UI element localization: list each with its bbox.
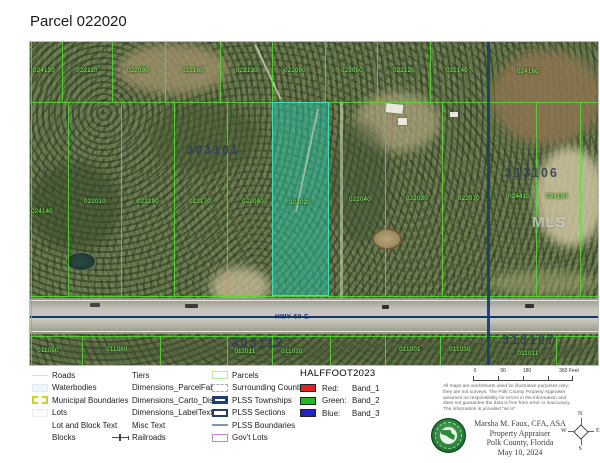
legend-item-label: Dimensions_LabelText bbox=[132, 408, 213, 417]
parcel-map-page: Parcel 022020 bbox=[0, 0, 600, 463]
raster-band-row: Red:Band_1 bbox=[300, 382, 380, 395]
legend-item-label: Misc Text bbox=[132, 421, 165, 430]
parcel-label: 011060 bbox=[106, 347, 127, 353]
band-name-label: Band_2 bbox=[352, 396, 380, 405]
parcel-line bbox=[220, 42, 221, 102]
legend-item-label: PLSS Townships bbox=[232, 396, 292, 405]
parcel-line bbox=[227, 102, 228, 296]
sections-icon bbox=[212, 409, 228, 417]
parcel-line bbox=[580, 102, 581, 296]
scale-tick-labels: 090180360 Feet bbox=[473, 368, 573, 375]
compass-e: E bbox=[596, 428, 600, 434]
scale-tick-mark bbox=[498, 376, 499, 380]
parcel-label: 024410 bbox=[508, 194, 530, 200]
parcel-label: 011050 bbox=[37, 348, 58, 354]
section-label: 313106 bbox=[505, 166, 559, 180]
terrain-patch bbox=[330, 122, 390, 242]
dirt-trail bbox=[340, 102, 343, 298]
page-title: Parcel 022020 bbox=[30, 13, 127, 30]
parcel-line bbox=[68, 102, 69, 296]
parcel-label: 022010 bbox=[84, 199, 106, 205]
raster-band-row: Green:Band_2 bbox=[300, 395, 380, 408]
section-label: 313107 bbox=[502, 333, 556, 347]
vehicle bbox=[382, 305, 389, 309]
parcel-label: 022080 bbox=[242, 199, 264, 205]
legend-item-label: Dimensions_ParcelFabric bbox=[132, 383, 223, 392]
railroad-icon bbox=[112, 437, 128, 438]
parcel-label: 022170 bbox=[189, 199, 211, 205]
band-channel-label: Green: bbox=[322, 396, 352, 405]
band-color-swatch bbox=[300, 384, 316, 392]
parcel-line bbox=[160, 336, 161, 365]
parcel-line bbox=[556, 336, 557, 365]
parcel-line bbox=[30, 296, 598, 297]
parcel-line bbox=[174, 102, 175, 296]
legend-column-3: ParcelsSurrounding CountiesPLSS Township… bbox=[212, 369, 309, 444]
parcel-line bbox=[536, 102, 537, 296]
scale-tick-mark bbox=[572, 376, 573, 380]
building-roof bbox=[398, 118, 407, 125]
parcel-line bbox=[385, 336, 386, 365]
raster-legend: HALFFOOT2023 Red:Band_1Green:Band_2Blue:… bbox=[300, 368, 380, 420]
parcel-label: 024130 bbox=[33, 68, 55, 74]
compass-n: N bbox=[578, 411, 582, 417]
parcel-label: 022020 bbox=[289, 200, 311, 206]
scale-tick-label: 0 bbox=[474, 368, 477, 374]
band-name-label: Band_3 bbox=[352, 409, 380, 418]
parcel-label: 022160 bbox=[182, 68, 204, 74]
legend-item-label: Lots bbox=[52, 408, 67, 417]
parcel-line bbox=[227, 336, 228, 365]
parcel-line bbox=[121, 102, 122, 296]
terrain-patch bbox=[30, 162, 120, 252]
govt-lots-icon bbox=[212, 434, 228, 442]
band-color-swatch bbox=[300, 409, 316, 417]
parcel-label: 011030 bbox=[449, 347, 470, 353]
road-edge-line bbox=[30, 300, 598, 301]
legend-item-label: Waterbodies bbox=[52, 383, 97, 392]
legend-item: Parcels bbox=[212, 369, 309, 382]
appraiser-title: Property Appraiser bbox=[468, 429, 572, 439]
parcel-label: 022030 bbox=[406, 196, 428, 202]
legend-column-2: TiersDimensions_ParcelFabricDimensions_C… bbox=[112, 369, 223, 444]
legend-item-label: Tiers bbox=[132, 371, 149, 380]
section-label: 303101 bbox=[186, 143, 240, 157]
water-icon bbox=[32, 384, 48, 392]
appraiser-name: Marsha M. Faux, CFA, ASA bbox=[468, 419, 572, 429]
legend-item: Misc Text bbox=[112, 419, 223, 432]
terrain-patch bbox=[488, 270, 598, 296]
parcel-line bbox=[325, 42, 326, 102]
appraiser-county: Polk County, Florida bbox=[468, 438, 572, 448]
parcel-label: 022060 bbox=[284, 68, 306, 74]
building-roof bbox=[386, 103, 404, 114]
parcel-line bbox=[62, 42, 63, 102]
mls-watermark: MLS bbox=[532, 214, 567, 231]
compass-s: S bbox=[579, 446, 582, 452]
parcel-label: 024180 bbox=[546, 194, 568, 200]
scale-tick-label: 360 Feet bbox=[559, 368, 579, 374]
dirt-trail bbox=[254, 44, 281, 99]
band-channel-label: Red: bbox=[322, 384, 352, 393]
legend-item-label: Lot and Block Text bbox=[52, 421, 117, 430]
highway-label: HWY-60-E bbox=[275, 314, 309, 321]
legend-item-label: Gov't Lots bbox=[232, 433, 268, 442]
property-appraiser-seal bbox=[431, 418, 466, 453]
pond bbox=[66, 252, 96, 271]
municipal-icon bbox=[32, 396, 48, 404]
legend-item-label: Railroads bbox=[132, 433, 166, 442]
parcel-label: 024160 bbox=[517, 69, 539, 75]
scale-tick-label: 180 bbox=[523, 368, 531, 374]
legend-item: Dimensions_Carto_Dist bbox=[112, 394, 223, 407]
parcel-label: 022050 bbox=[341, 68, 363, 74]
legend-item: Gov't Lots bbox=[212, 432, 309, 445]
parcel-label: 022120 bbox=[393, 68, 415, 74]
scale-tick-mark bbox=[548, 376, 549, 380]
map-date: May 10, 2024 bbox=[468, 448, 572, 458]
parcel-line bbox=[112, 42, 113, 102]
scale-tick-mark bbox=[523, 376, 524, 380]
scale-tick-label: 90 bbox=[500, 368, 506, 374]
parcel-label: 022190 bbox=[137, 199, 159, 205]
parcel-line bbox=[31, 42, 32, 365]
legend-item-label: Surrounding Counties bbox=[232, 383, 309, 392]
legend-item: Railroads bbox=[112, 432, 223, 445]
legend-item-label: PLSS Boundaries bbox=[232, 421, 295, 430]
legend-item: PLSS Sections bbox=[212, 407, 309, 420]
legend-item: Tiers bbox=[112, 369, 223, 382]
legend-item-label: Blocks bbox=[52, 433, 76, 442]
highway-centerline bbox=[30, 316, 598, 318]
parcel-line bbox=[385, 102, 386, 296]
retention-pond bbox=[372, 228, 402, 250]
parcel-line bbox=[165, 42, 166, 102]
parcel-line bbox=[442, 102, 443, 296]
compass-w: W bbox=[561, 428, 567, 434]
plss-line-icon bbox=[212, 424, 228, 426]
legend-item-label: PLSS Sections bbox=[232, 408, 285, 417]
parcel-line bbox=[272, 42, 273, 102]
parcels-icon bbox=[212, 371, 228, 379]
road-edge-line bbox=[30, 331, 598, 332]
townships-icon bbox=[212, 396, 228, 404]
attribution-block: Marsha M. Faux, CFA, ASA Property Apprai… bbox=[468, 419, 572, 457]
plss-boundary-line bbox=[487, 42, 490, 365]
disclaimer-text: All maps are worksheets used for illustr… bbox=[443, 384, 595, 413]
parcel-label: 022140 bbox=[446, 68, 468, 74]
parcel-label: 011001 bbox=[399, 347, 420, 353]
vehicle bbox=[90, 303, 100, 307]
parcel-label: 022040 bbox=[349, 197, 371, 203]
legend-item: PLSS Boundaries bbox=[212, 419, 309, 432]
raster-title: HALFFOOT2023 bbox=[300, 368, 380, 379]
legend-item: Surrounding Counties bbox=[212, 382, 309, 395]
legend-item: Dimensions_LabelText bbox=[112, 407, 223, 420]
highlighted-parcel-022020 bbox=[272, 102, 329, 296]
legend-item: PLSS Townships bbox=[212, 394, 309, 407]
parcel-label: 024140 bbox=[31, 209, 53, 215]
counties-icon bbox=[212, 384, 228, 392]
parcel-line bbox=[430, 42, 431, 102]
parcel-line bbox=[440, 336, 441, 365]
legend-item-label: Dimensions_Carto_Dist bbox=[132, 396, 216, 405]
section-label: 303112 bbox=[231, 336, 284, 350]
terrain-patch bbox=[492, 50, 598, 145]
scale-bar: 090180360 Feet bbox=[473, 368, 573, 381]
parcel-label: 022130 bbox=[236, 68, 258, 74]
parcel-label: 011011 bbox=[518, 351, 539, 357]
legend-item-label: Parcels bbox=[232, 371, 259, 380]
legend-item: Dimensions_ParcelFabric bbox=[112, 382, 223, 395]
compass-diamond bbox=[573, 424, 589, 440]
parcel-label: 022070 bbox=[458, 196, 480, 202]
lots-icon bbox=[32, 409, 48, 417]
vehicle bbox=[185, 304, 198, 308]
terrain-patch bbox=[150, 102, 260, 172]
road-line-icon bbox=[32, 375, 48, 376]
map: HWY-60-E MLS 024130022110022090022160022… bbox=[30, 42, 598, 365]
building-roof bbox=[450, 112, 458, 117]
parcel-line bbox=[377, 42, 378, 102]
parcel-label: 022110 bbox=[76, 68, 97, 74]
vehicle bbox=[525, 304, 534, 308]
band-channel-label: Blue: bbox=[322, 409, 352, 418]
raster-band-row: Blue:Band_3 bbox=[300, 407, 380, 420]
band-color-swatch bbox=[300, 397, 316, 405]
scale-bar-line bbox=[473, 376, 573, 381]
compass-rose-icon: N S W E bbox=[567, 411, 595, 453]
legend-item-label: Roads bbox=[52, 371, 75, 380]
band-name-label: Band_1 bbox=[352, 384, 380, 393]
parcel-label: 022090 bbox=[127, 68, 149, 74]
parcel-line bbox=[82, 336, 83, 365]
parcel-line bbox=[330, 336, 331, 365]
scale-tick-mark bbox=[473, 376, 474, 380]
